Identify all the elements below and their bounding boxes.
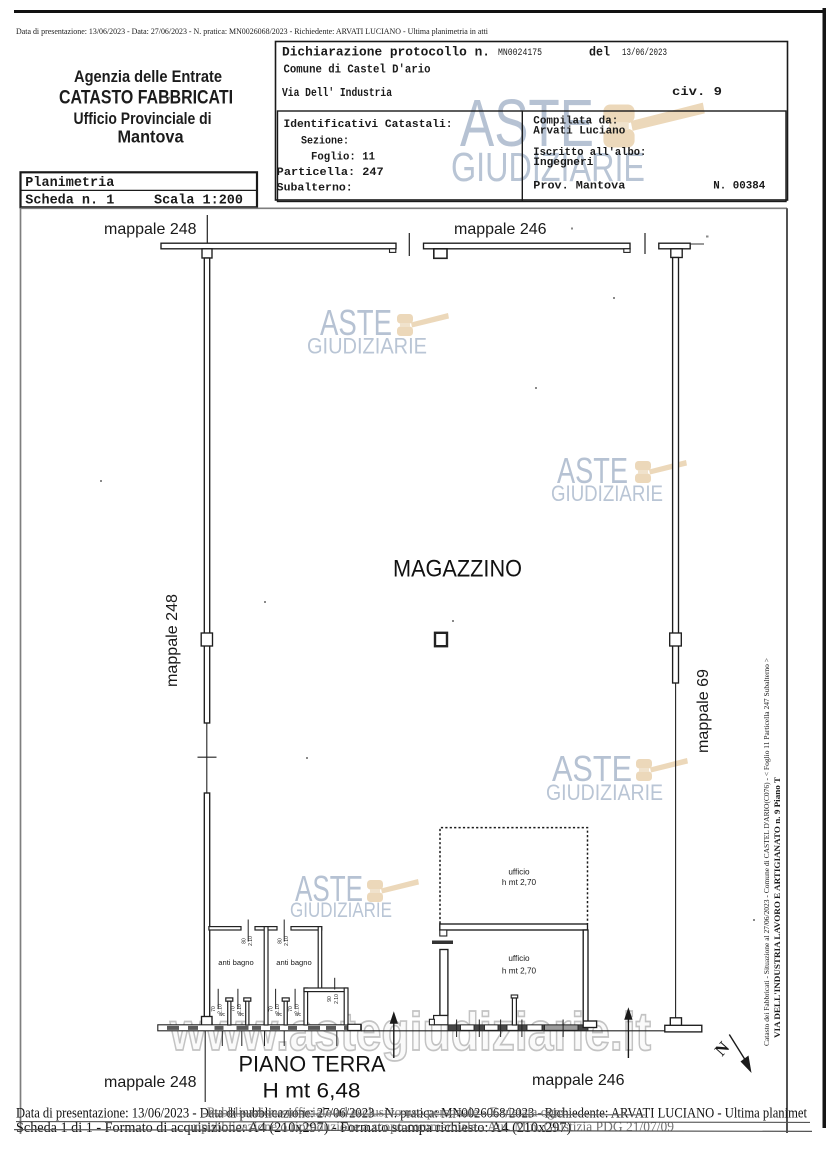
svg-text:mappale 246: mappale 246	[532, 1072, 625, 1089]
svg-text:Pubblicazione ufficiale ad esc: Pubblicazione ufficiale ad esclusivo uso…	[207, 1105, 565, 1120]
svg-text:PIANO TERRA: PIANO TERRA	[239, 1052, 386, 1077]
svg-text:mappale 248: mappale 248	[104, 1074, 197, 1091]
svg-text:N: N	[711, 1037, 734, 1059]
svg-text:H mt 6,48: H mt 6,48	[263, 1080, 361, 1103]
